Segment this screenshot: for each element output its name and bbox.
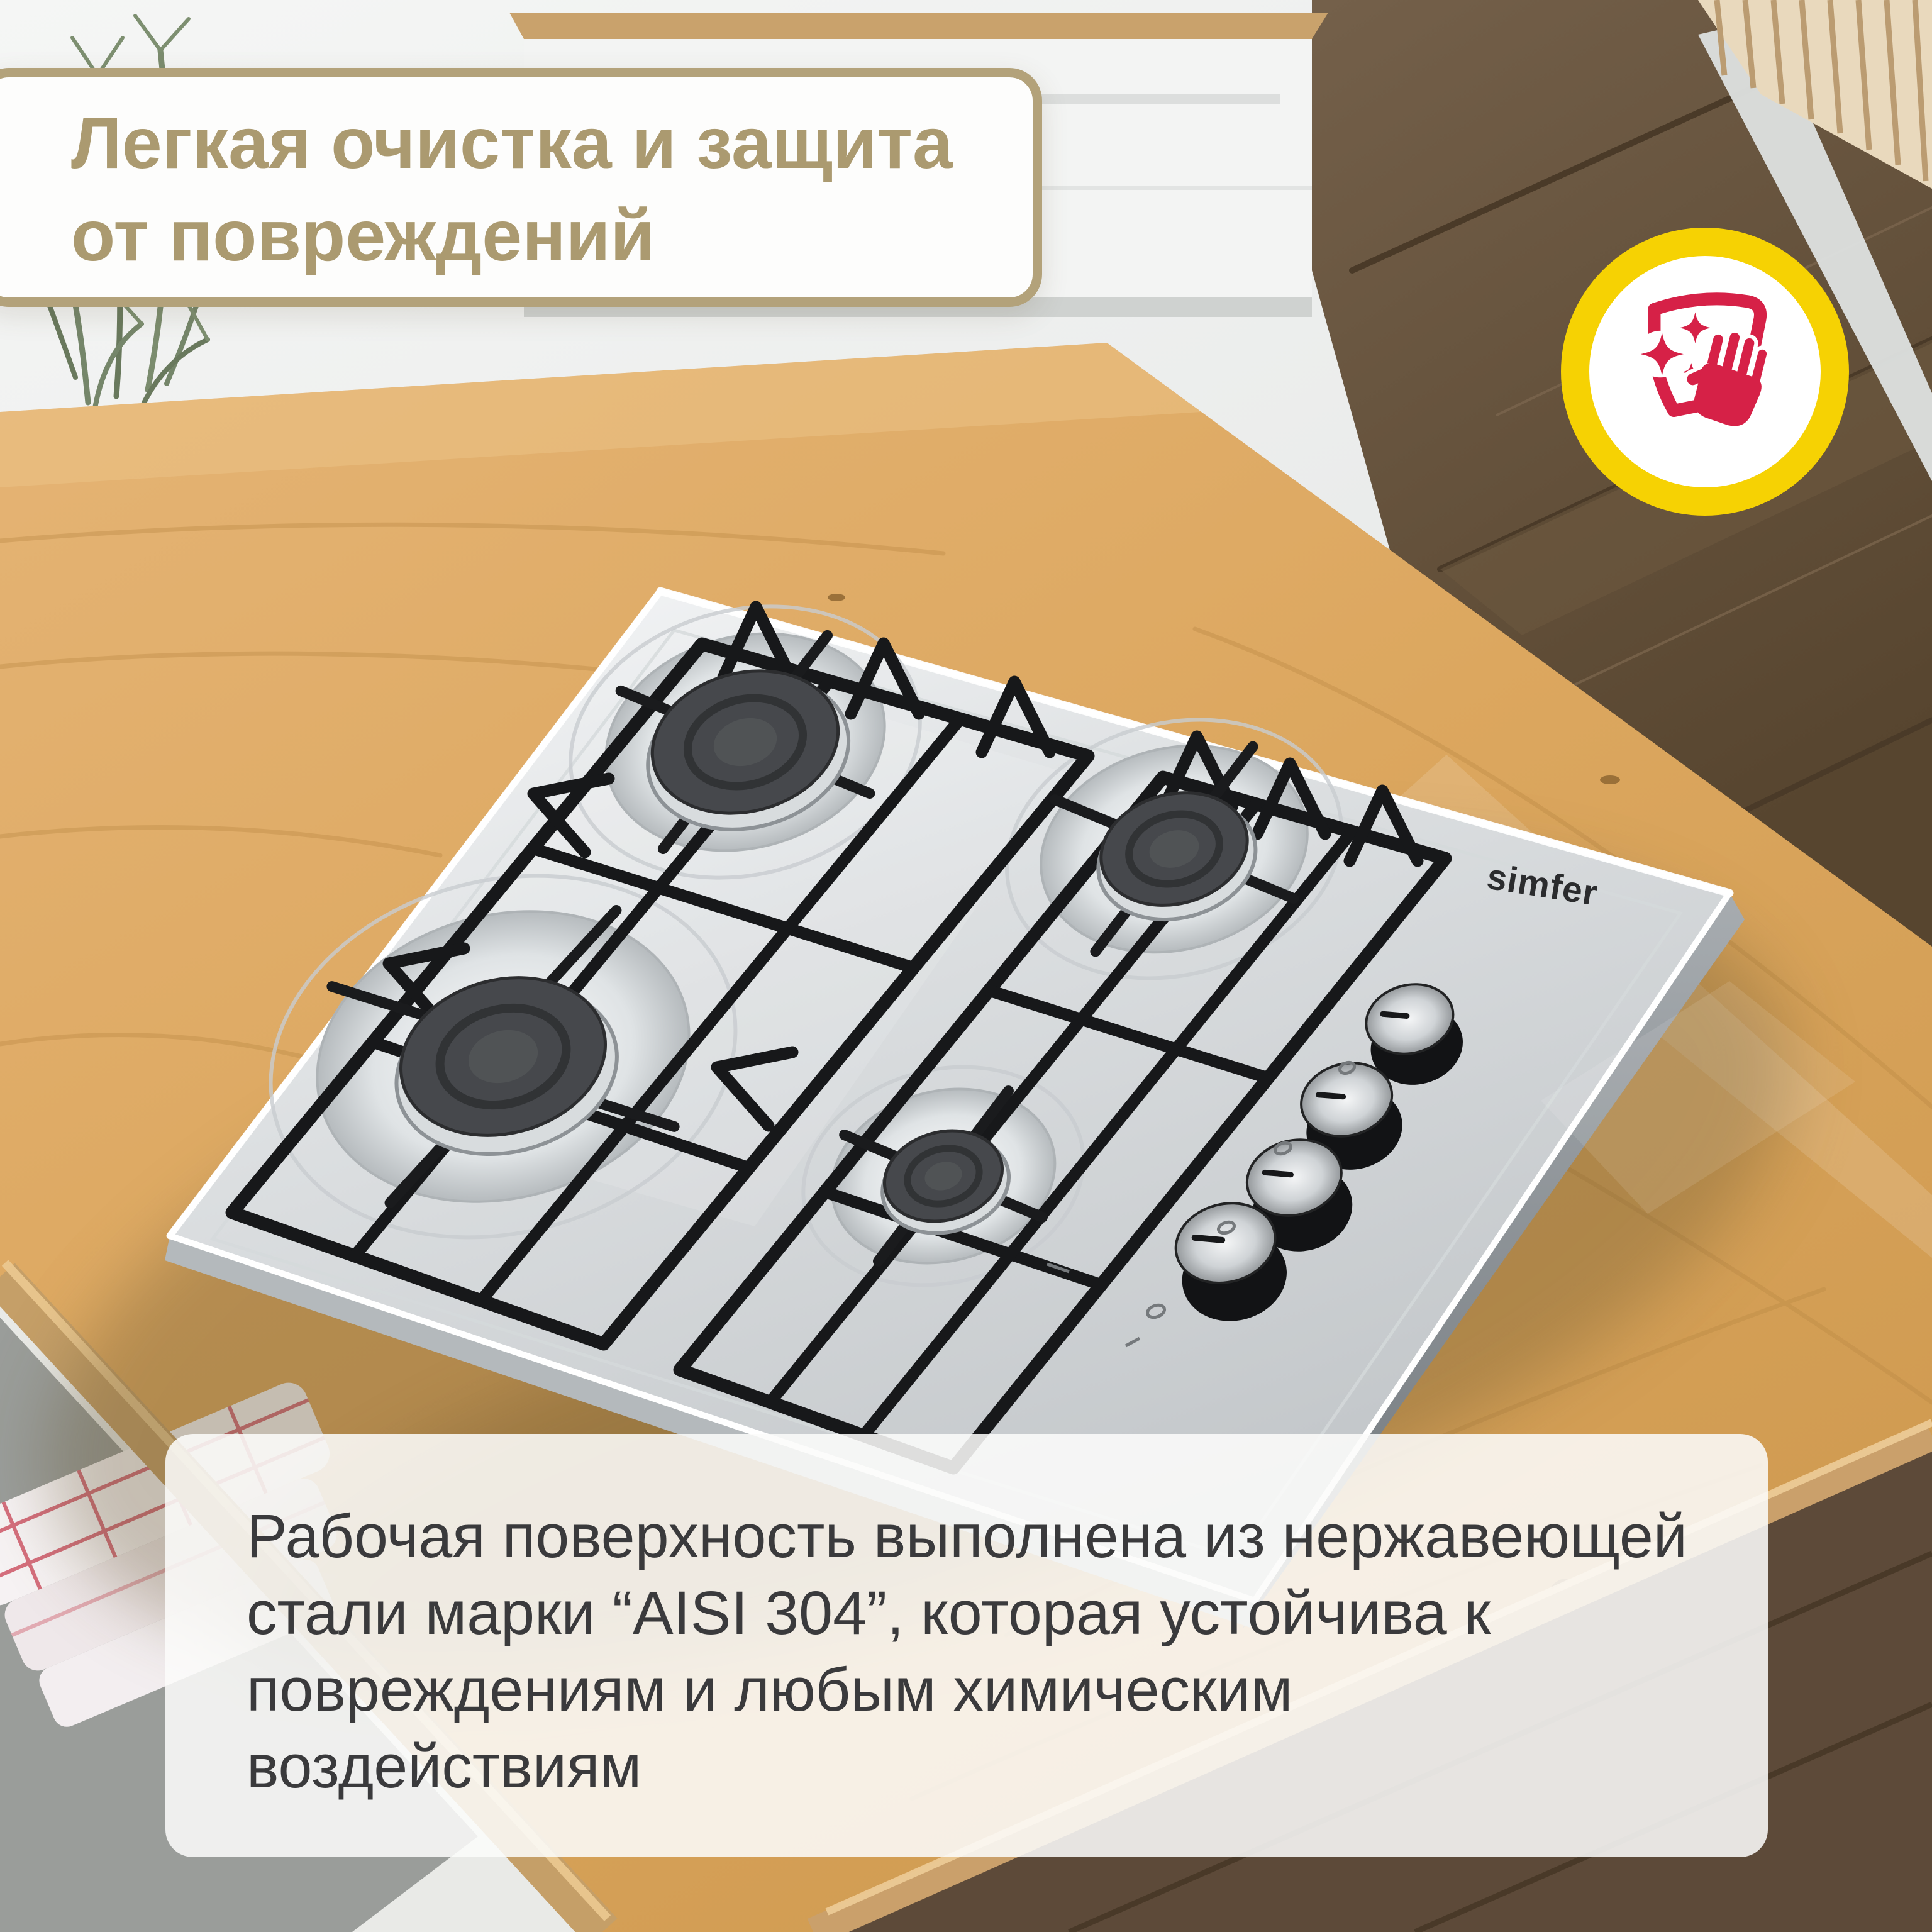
easy-clean-badge — [1561, 228, 1849, 516]
product-marketing-image: simfer — [0, 0, 1932, 1932]
description-line-1: Рабочая поверхность выполнена из нержаве… — [247, 1498, 1743, 1575]
title-card: Легкая очистка и защита от повреждений — [0, 68, 1042, 307]
description-line-2: стали марки “AISI 304”, которая устойчив… — [247, 1575, 1743, 1652]
title-line-1: Легкая очистка и защита — [71, 97, 1020, 190]
description-line-3: повреждениям и любым химическим — [247, 1652, 1743, 1728]
clean-wipe-icon — [1607, 274, 1802, 469]
description-card: Рабочая поверхность выполнена из нержаве… — [165, 1434, 1768, 1857]
title-line-2: от повреждений — [71, 190, 1020, 282]
description-line-4: воздействиям — [247, 1728, 1743, 1805]
